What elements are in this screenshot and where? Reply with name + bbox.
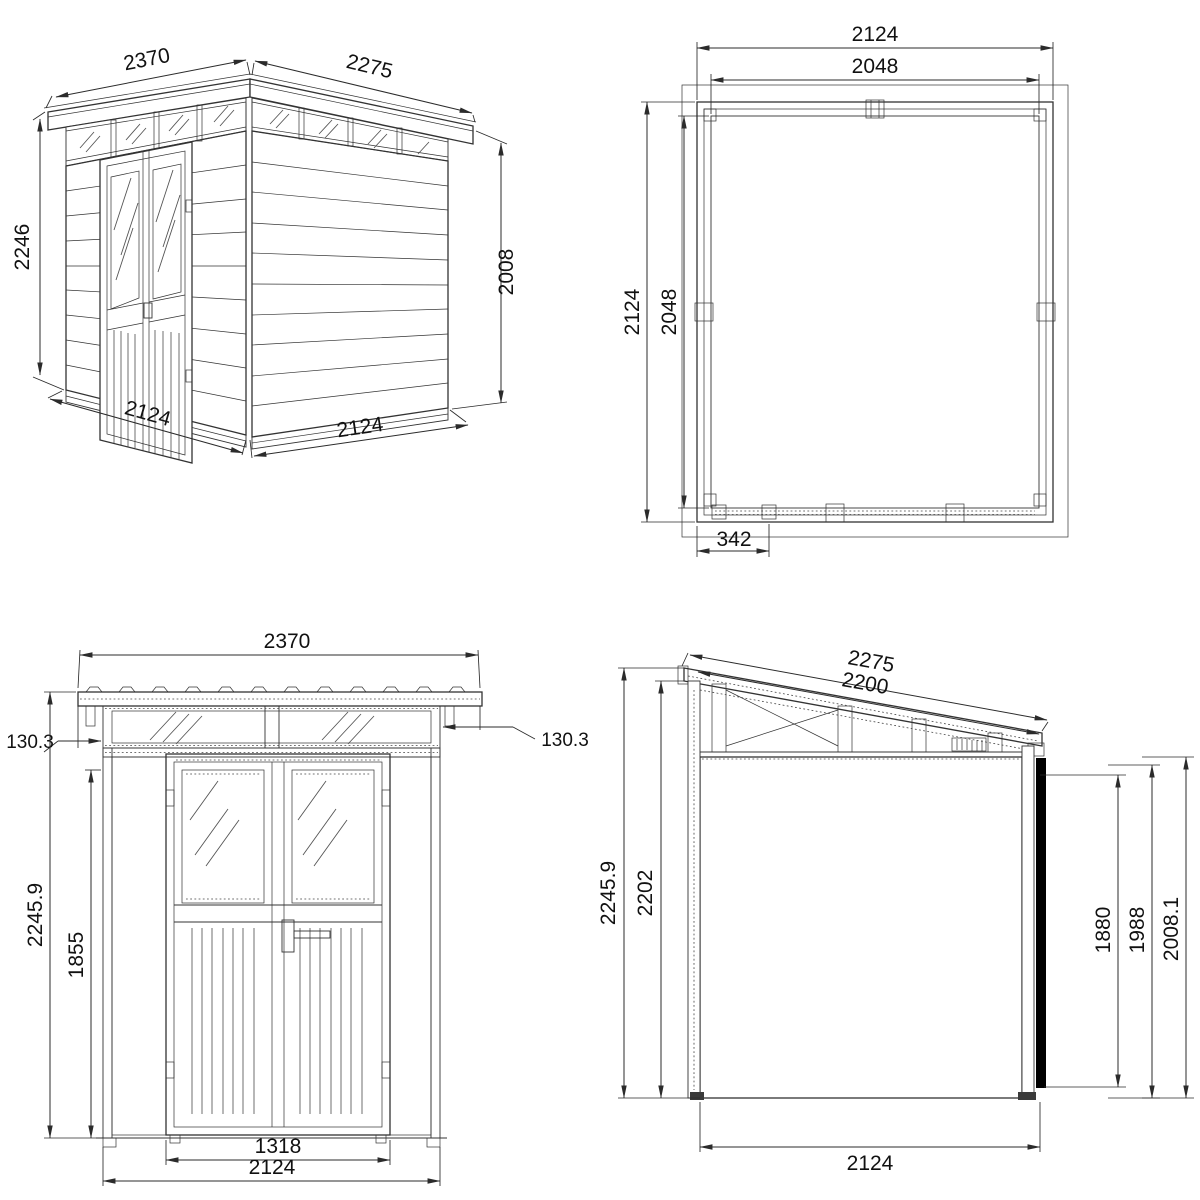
dim-plan-width-outer: 2124 bbox=[852, 23, 899, 46]
side-rear-post bbox=[1022, 746, 1034, 1098]
front-door-handle bbox=[282, 920, 330, 952]
dim-side-height-rear-total: 2008.1 bbox=[1160, 897, 1183, 961]
plan-wall-connectors bbox=[695, 100, 1055, 522]
dim-front-height-total: 2245.9 bbox=[24, 883, 47, 947]
view-perspective: 2370 2275 2246 2008 2124 2124 bbox=[11, 44, 518, 463]
dim-front-door-width: 1318 bbox=[255, 1135, 302, 1158]
front-door bbox=[166, 754, 390, 1135]
technical-drawing-sheet: 2370 2275 2246 2008 2124 2124 bbox=[0, 0, 1200, 1200]
side-siding bbox=[700, 757, 1022, 1098]
front-door-hinge bbox=[382, 1062, 390, 1078]
front-corner-post-left bbox=[103, 748, 112, 1138]
plan-dimensions: 2124 2048 2124 2048 342 bbox=[621, 23, 1053, 557]
front-roof-bracket-left bbox=[86, 706, 95, 726]
dim-plan-width-inner: 2048 bbox=[852, 55, 899, 78]
dim-side-height-total: 2245.9 bbox=[597, 861, 620, 925]
dim-side-depth: 2124 bbox=[847, 1152, 894, 1175]
front-door-hinge bbox=[382, 790, 390, 806]
dim-plan-door-offset: 342 bbox=[716, 528, 751, 551]
front-corner-post-right bbox=[431, 748, 440, 1138]
dim-perspective-roof-front: 2370 bbox=[122, 44, 172, 75]
dim-plan-depth-outer: 2124 bbox=[621, 288, 644, 335]
dim-side-height-front: 2202 bbox=[634, 870, 657, 917]
dim-front-overhang-left: 130.3 bbox=[6, 732, 54, 753]
side-wall bbox=[688, 681, 1046, 1100]
shed-drawing-svg: 2370 2275 2246 2008 2124 2124 bbox=[0, 0, 1200, 1200]
view-front-elevation: 2370 130.3 130.3 2245.9 1855 1318 2124 bbox=[6, 630, 589, 1186]
plan-walls bbox=[697, 102, 1053, 522]
dim-perspective-height-front: 2246 bbox=[11, 224, 34, 271]
front-roof-bracket-right bbox=[445, 706, 454, 726]
front-door-hinge bbox=[166, 1062, 174, 1078]
view-floor-plan: 2124 2048 2124 2048 342 bbox=[621, 23, 1068, 557]
dim-side-height-rear: 1988 bbox=[1126, 907, 1149, 954]
dim-plan-depth-inner: 2048 bbox=[658, 289, 681, 336]
perspective-side-wall bbox=[252, 131, 448, 437]
front-clerestory bbox=[103, 706, 440, 748]
front-dimensions: 2370 130.3 130.3 2245.9 1855 1318 2124 bbox=[6, 630, 589, 1186]
dim-front-overhang-right: 130.3 bbox=[541, 730, 589, 751]
dim-front-width: 2124 bbox=[249, 1156, 296, 1179]
dim-front-height-opening: 1855 bbox=[65, 932, 88, 979]
dim-perspective-roof-side: 2275 bbox=[344, 50, 395, 83]
side-vent bbox=[952, 738, 986, 751]
perspective-corner-trim bbox=[246, 98, 252, 437]
side-far-fascia bbox=[1036, 758, 1046, 1088]
front-siding-right bbox=[390, 757, 431, 1135]
side-foot-right bbox=[1018, 1092, 1036, 1100]
dim-side-height-rear-inner: 1880 bbox=[1092, 907, 1115, 954]
plan-roof-outline bbox=[682, 85, 1068, 537]
dim-front-roof-width: 2370 bbox=[264, 630, 311, 653]
front-roof bbox=[78, 687, 482, 726]
front-door-hinge bbox=[166, 790, 174, 806]
front-siding-left bbox=[112, 757, 166, 1135]
plan-corner-connectors bbox=[704, 109, 1046, 506]
plan-door-track bbox=[712, 505, 1035, 519]
side-foot-left bbox=[690, 1092, 704, 1100]
dim-perspective-height-rear: 2008 bbox=[495, 249, 518, 296]
view-side-elevation: 2275 2200 2245.9 2202 1880 1988 2008.1 2… bbox=[597, 646, 1194, 1175]
